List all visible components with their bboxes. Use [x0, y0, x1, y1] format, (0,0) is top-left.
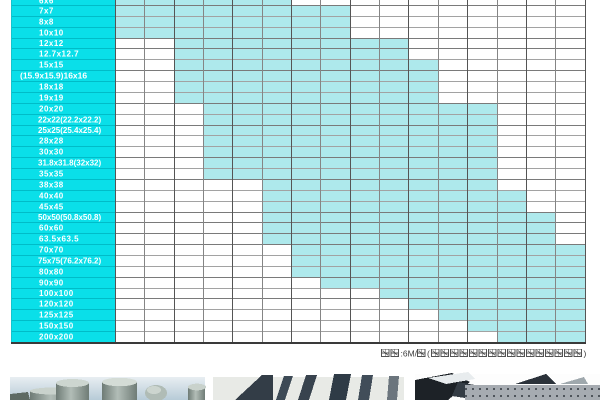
svg-text:): ) — [584, 349, 587, 359]
svg-text:120x120: 120x120 — [39, 299, 74, 308]
svg-text:90x90: 90x90 — [39, 278, 64, 287]
svg-text:28x28: 28x28 — [39, 136, 64, 145]
svg-text:75x75(76.2x76.2): 75x75(76.2x76.2) — [38, 256, 102, 265]
svg-text:31.8x31.8(32x32): 31.8x31.8(32x32) — [38, 158, 102, 167]
svg-text:12x12: 12x12 — [39, 39, 64, 48]
svg-text:50x50(50.8x50.8): 50x50(50.8x50.8) — [38, 213, 102, 222]
svg-text:(15.9x15.9)16x16: (15.9x15.9)16x16 — [20, 70, 87, 80]
svg-text:30x30: 30x30 — [39, 147, 64, 156]
svg-text:12.7x12.7: 12.7x12.7 — [39, 49, 79, 58]
svg-text:45x45: 45x45 — [39, 202, 64, 211]
svg-text::6M/: :6M/ — [401, 349, 418, 359]
svg-text:8x8: 8x8 — [39, 17, 54, 26]
svg-text:25x25(25.4x25.4): 25x25(25.4x25.4) — [38, 126, 102, 135]
svg-text:10x10: 10x10 — [39, 28, 64, 37]
svg-text:70x70: 70x70 — [39, 245, 64, 254]
svg-text:20x20: 20x20 — [39, 104, 64, 113]
svg-text:63.5x63.5: 63.5x63.5 — [39, 234, 79, 243]
svg-text:200x200: 200x200 — [39, 332, 74, 341]
svg-text:125x125: 125x125 — [39, 310, 74, 319]
svg-text:22x22(22.2x22.2): 22x22(22.2x22.2) — [38, 115, 102, 124]
svg-text:18x18: 18x18 — [39, 82, 64, 91]
svg-text:38x38: 38x38 — [39, 180, 64, 189]
svg-text:40x40: 40x40 — [39, 191, 64, 200]
svg-text:6x6: 6x6 — [39, 0, 54, 5]
svg-text:35x35: 35x35 — [39, 169, 64, 178]
svg-text:60x60: 60x60 — [39, 223, 64, 232]
svg-text:100x100: 100x100 — [39, 289, 74, 298]
svg-text:150x150: 150x150 — [39, 321, 74, 330]
svg-text:(: ( — [427, 349, 430, 359]
svg-text:80x80: 80x80 — [39, 267, 64, 276]
svg-text:15x15: 15x15 — [39, 60, 64, 69]
svg-text:7x7: 7x7 — [39, 6, 54, 15]
svg-text:19x19: 19x19 — [39, 93, 64, 102]
